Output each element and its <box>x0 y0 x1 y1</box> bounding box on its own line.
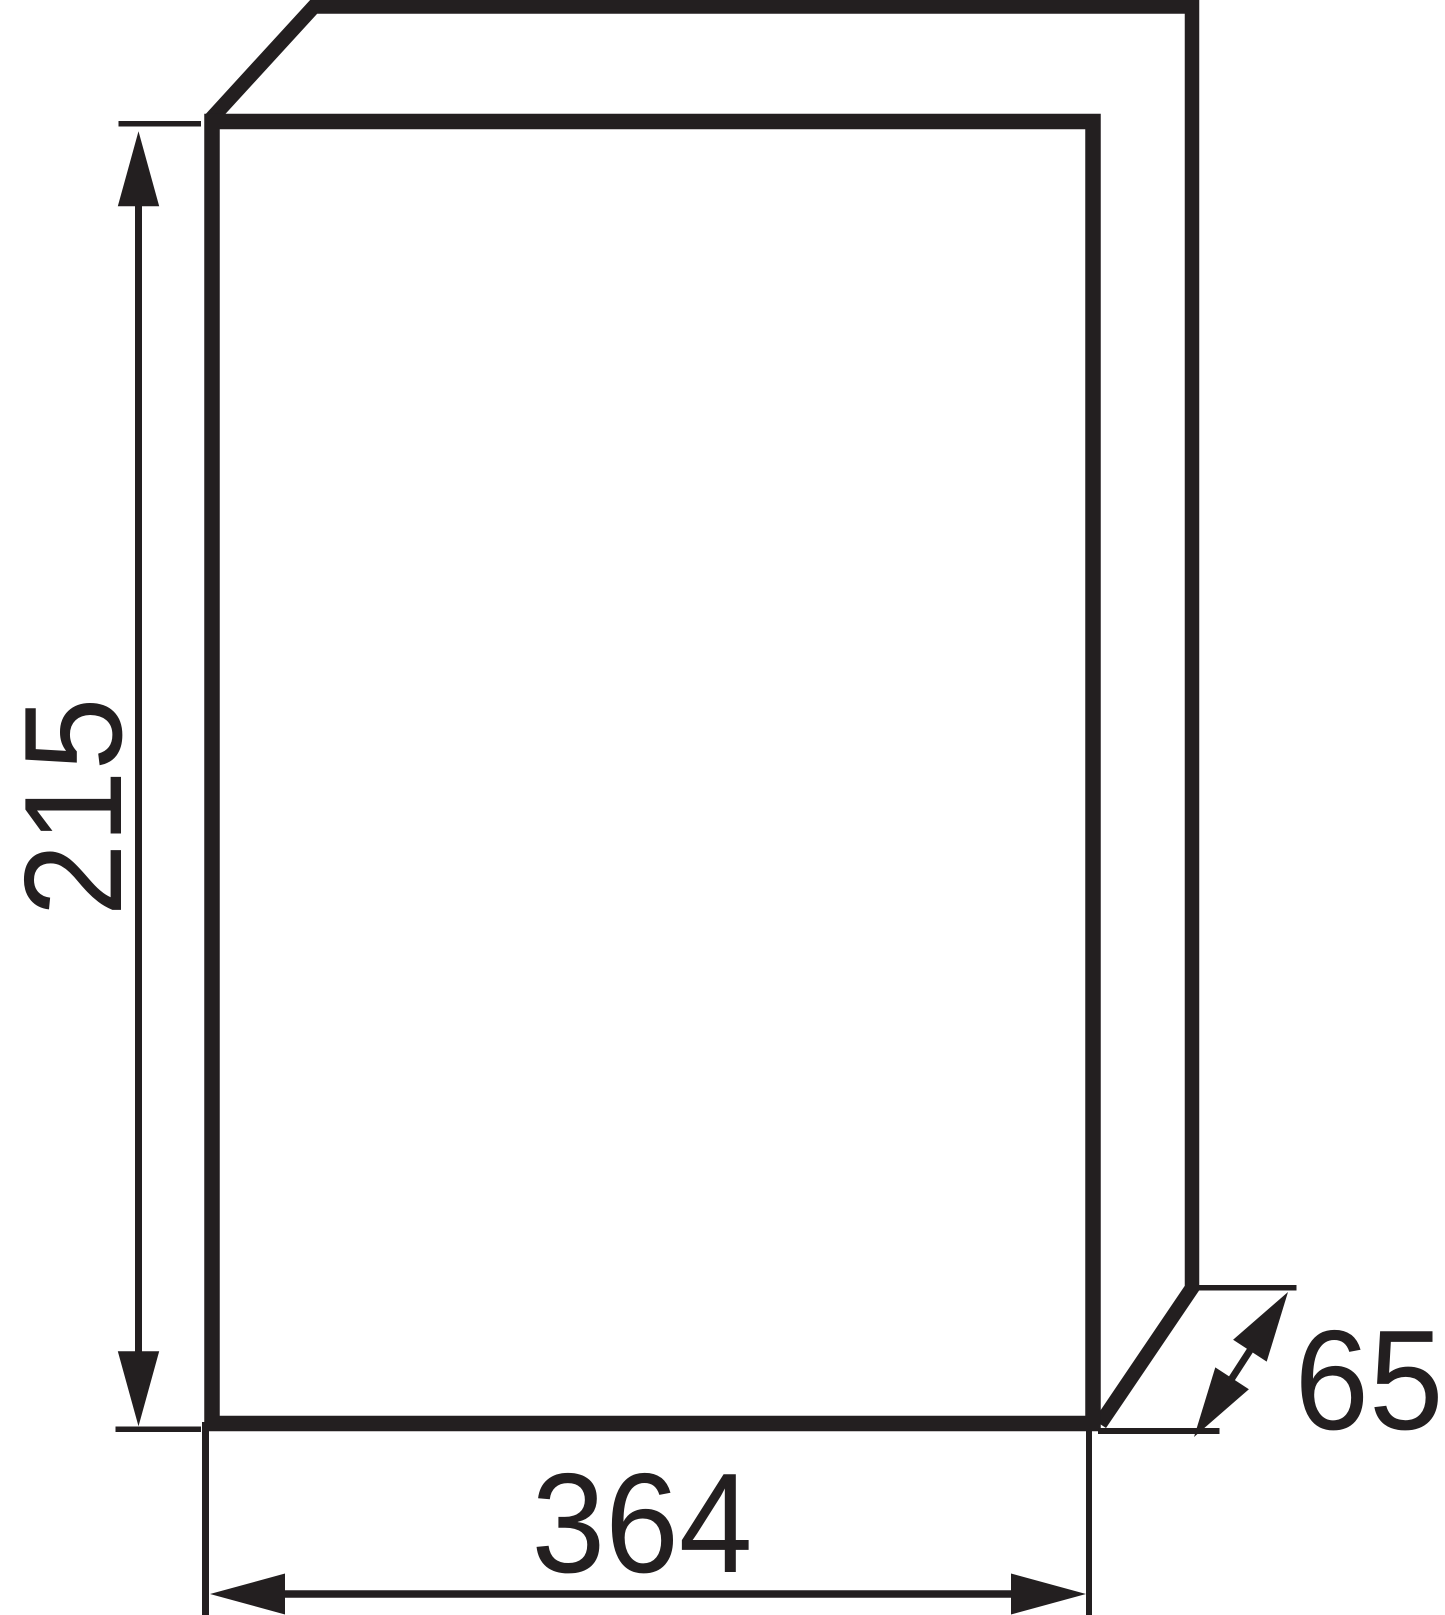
svg-text:65: 65 <box>1295 1301 1444 1460</box>
svg-text:364: 364 <box>532 1444 753 1603</box>
svg-text:215: 215 <box>0 698 151 917</box>
